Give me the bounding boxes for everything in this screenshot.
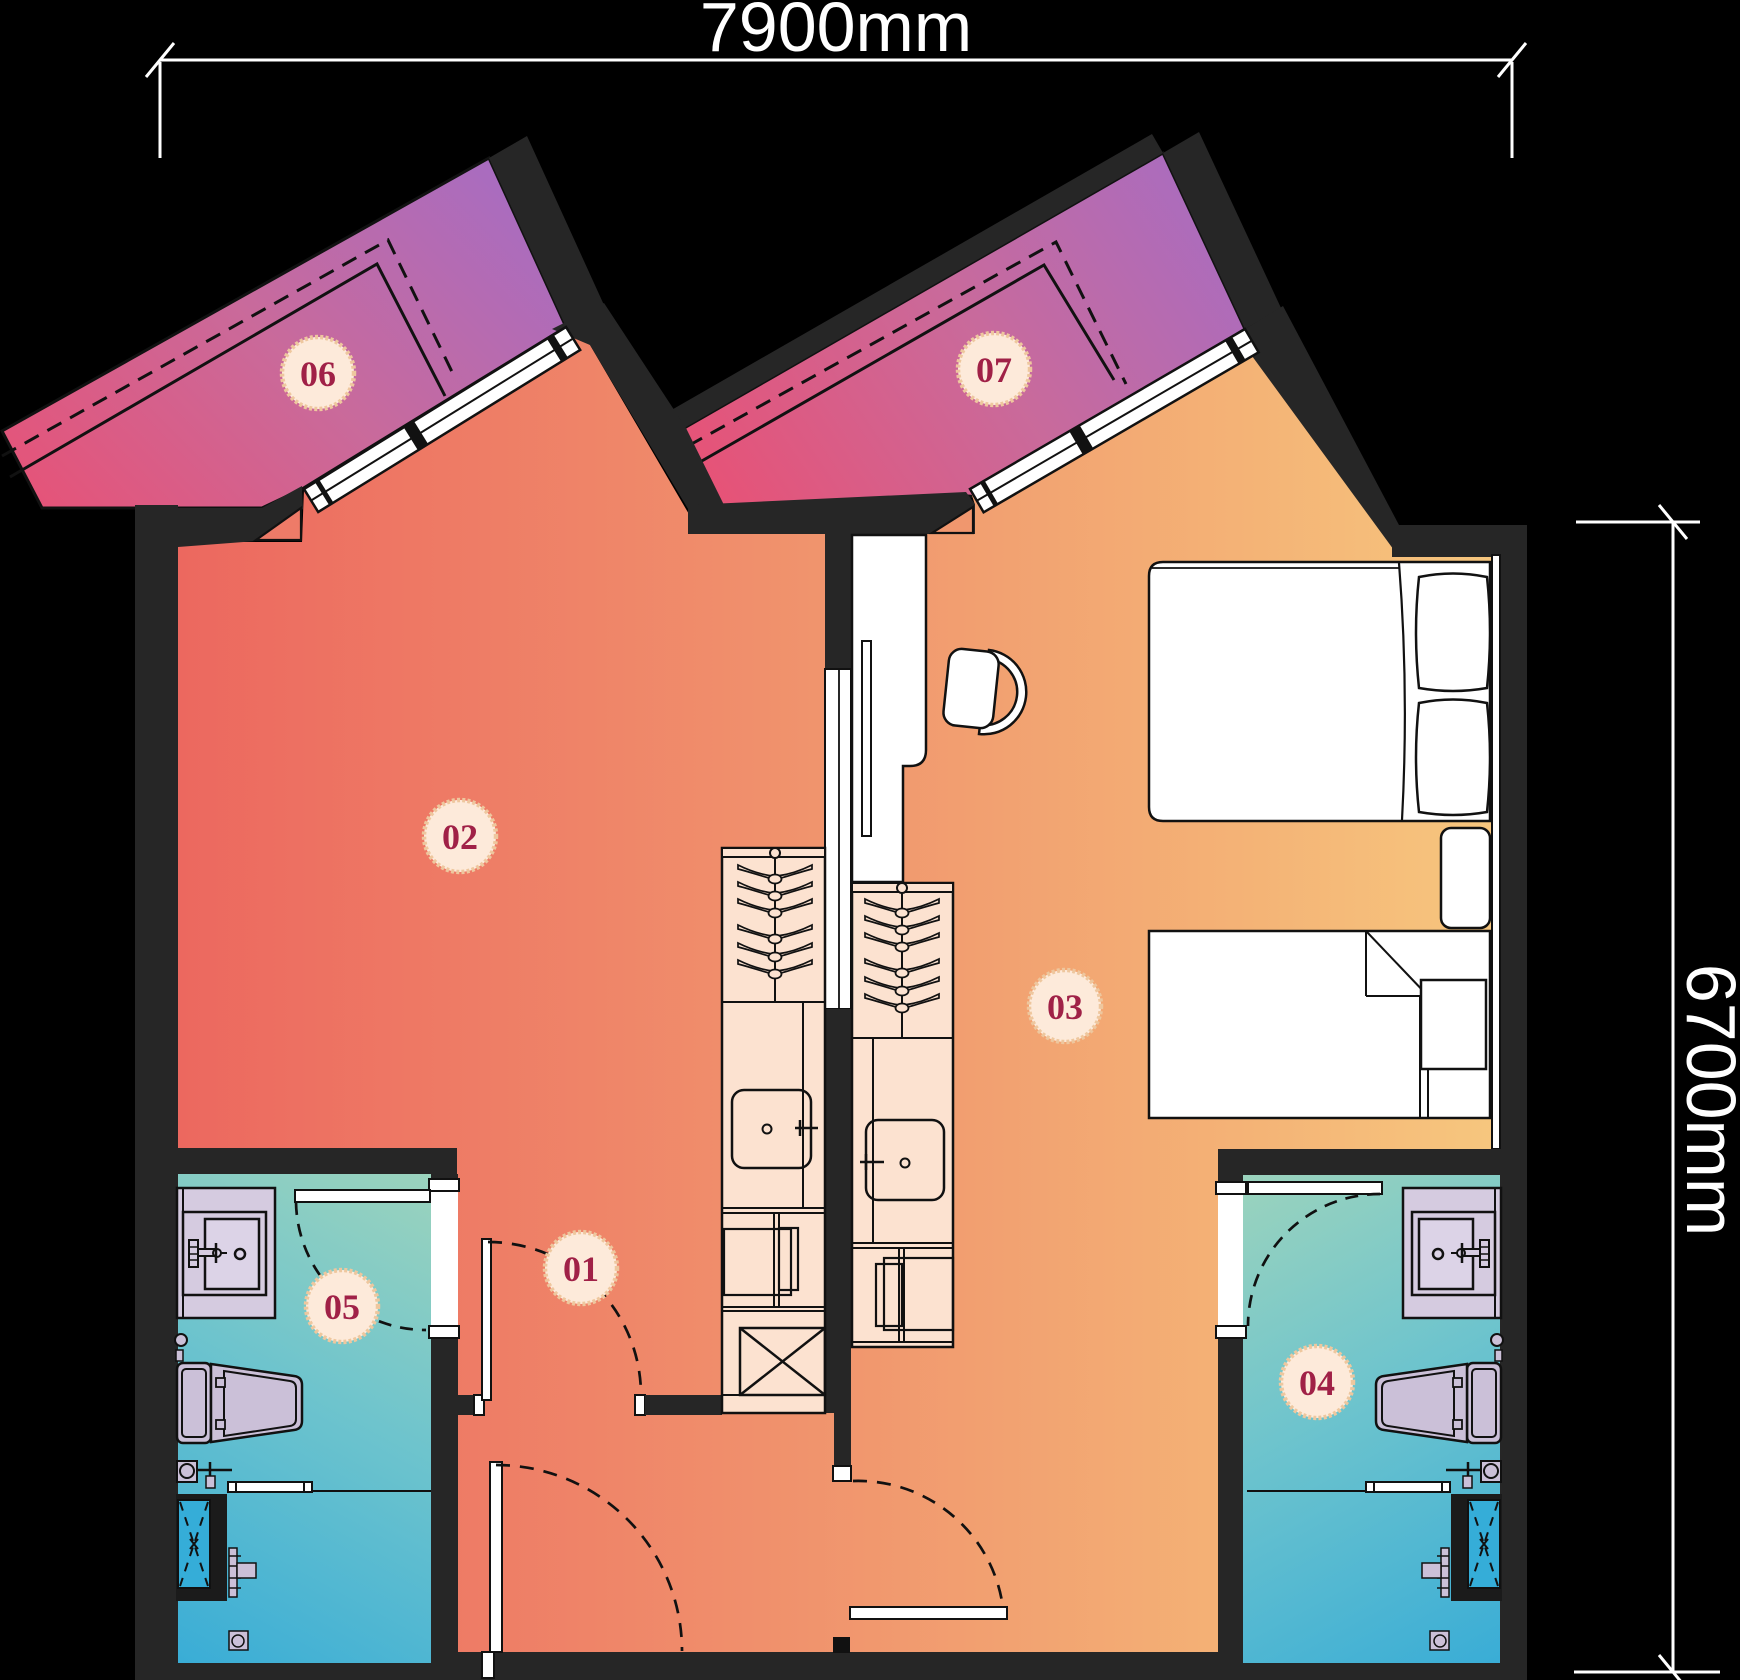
svg-text:06: 06 bbox=[300, 354, 336, 394]
svg-text:01: 01 bbox=[563, 1249, 599, 1289]
svg-text:7900mm: 7900mm bbox=[700, 0, 972, 66]
svg-text:02: 02 bbox=[442, 817, 478, 857]
svg-text:04: 04 bbox=[1299, 1363, 1335, 1403]
svg-text:05: 05 bbox=[324, 1287, 360, 1327]
svg-text:07: 07 bbox=[976, 350, 1012, 390]
svg-text:6700mm: 6700mm bbox=[1672, 964, 1740, 1236]
svg-text:03: 03 bbox=[1047, 987, 1083, 1027]
